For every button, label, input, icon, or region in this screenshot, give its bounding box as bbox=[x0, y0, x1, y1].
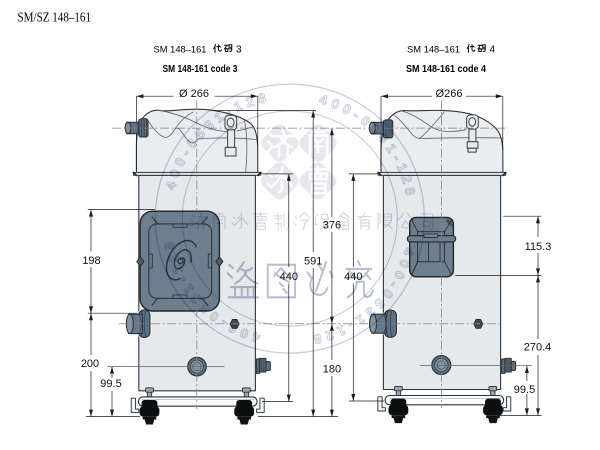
svg-text:4: 4 bbox=[490, 45, 496, 56]
svg-text:200: 200 bbox=[81, 358, 99, 370]
svg-text:99.5: 99.5 bbox=[100, 378, 121, 390]
svg-text:115.3: 115.3 bbox=[525, 241, 552, 253]
svg-text:Ø 266: Ø 266 bbox=[179, 88, 209, 100]
svg-text:SM 148-161 code 4: SM 148-161 code 4 bbox=[406, 63, 486, 75]
svg-text:SM 148-161 code 3: SM 148-161 code 3 bbox=[163, 63, 238, 75]
svg-text:SM 148–161: SM 148–161 bbox=[154, 45, 207, 56]
svg-text:3: 3 bbox=[236, 45, 242, 56]
svg-text:Ø266: Ø266 bbox=[436, 88, 463, 100]
svg-text:SM 148–161: SM 148–161 bbox=[407, 45, 460, 56]
svg-text:270.4: 270.4 bbox=[524, 342, 552, 354]
svg-text:440: 440 bbox=[280, 271, 298, 283]
svg-text:180: 180 bbox=[323, 364, 341, 376]
svg-text:591: 591 bbox=[304, 256, 322, 268]
svg-text:440: 440 bbox=[344, 271, 362, 283]
svg-text:198: 198 bbox=[82, 255, 100, 267]
svg-text:376: 376 bbox=[323, 220, 341, 232]
svg-text:99.5: 99.5 bbox=[514, 384, 535, 396]
svg-text:SM/SZ 148–161: SM/SZ 148–161 bbox=[18, 9, 92, 24]
